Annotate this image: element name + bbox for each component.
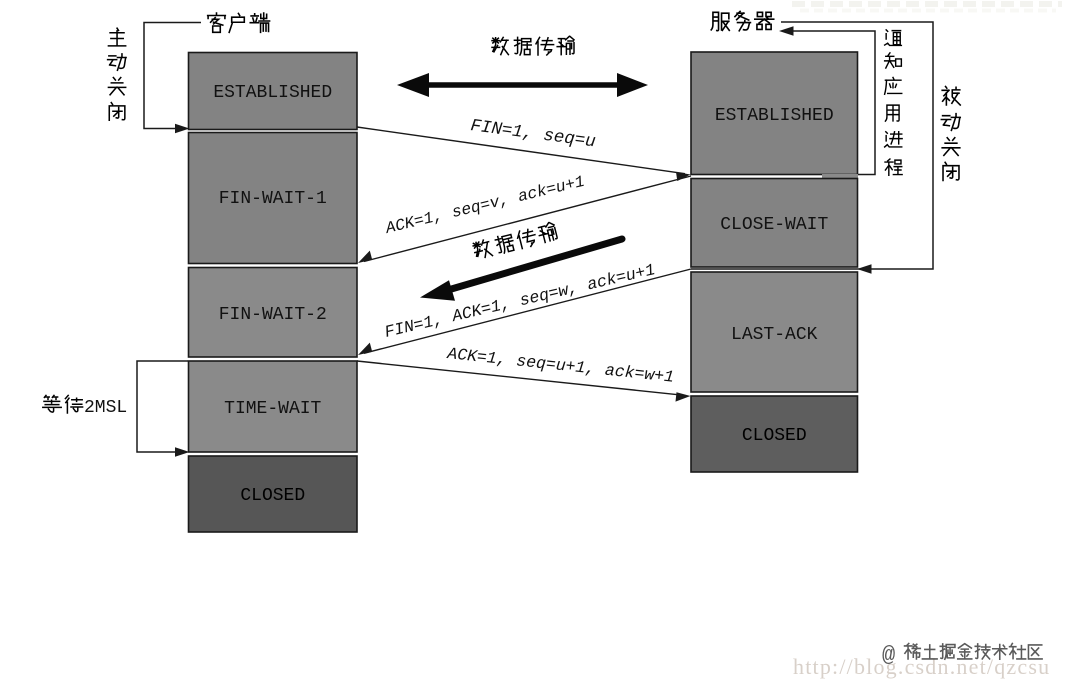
svg-text:CLOSE-WAIT: CLOSE-WAIT bbox=[720, 215, 828, 235]
svg-text:FIN-WAIT-1: FIN-WAIT-1 bbox=[219, 189, 327, 209]
svg-text:@: @ bbox=[882, 643, 895, 668]
svg-text:http://blog.csdn.net/qzcsu: http://blog.csdn.net/qzcsu bbox=[793, 654, 1050, 679]
svg-text:CLOSED: CLOSED bbox=[240, 486, 305, 506]
svg-text:TIME-WAIT: TIME-WAIT bbox=[224, 399, 321, 419]
svg-text:ESTABLISHED: ESTABLISHED bbox=[715, 106, 834, 126]
svg-text:2MSL: 2MSL bbox=[84, 398, 127, 418]
svg-text:FIN-WAIT-2: FIN-WAIT-2 bbox=[219, 305, 327, 325]
svg-text:CLOSED: CLOSED bbox=[742, 426, 807, 446]
svg-text:ESTABLISHED: ESTABLISHED bbox=[213, 83, 332, 103]
svg-text:LAST-ACK: LAST-ACK bbox=[731, 325, 818, 345]
